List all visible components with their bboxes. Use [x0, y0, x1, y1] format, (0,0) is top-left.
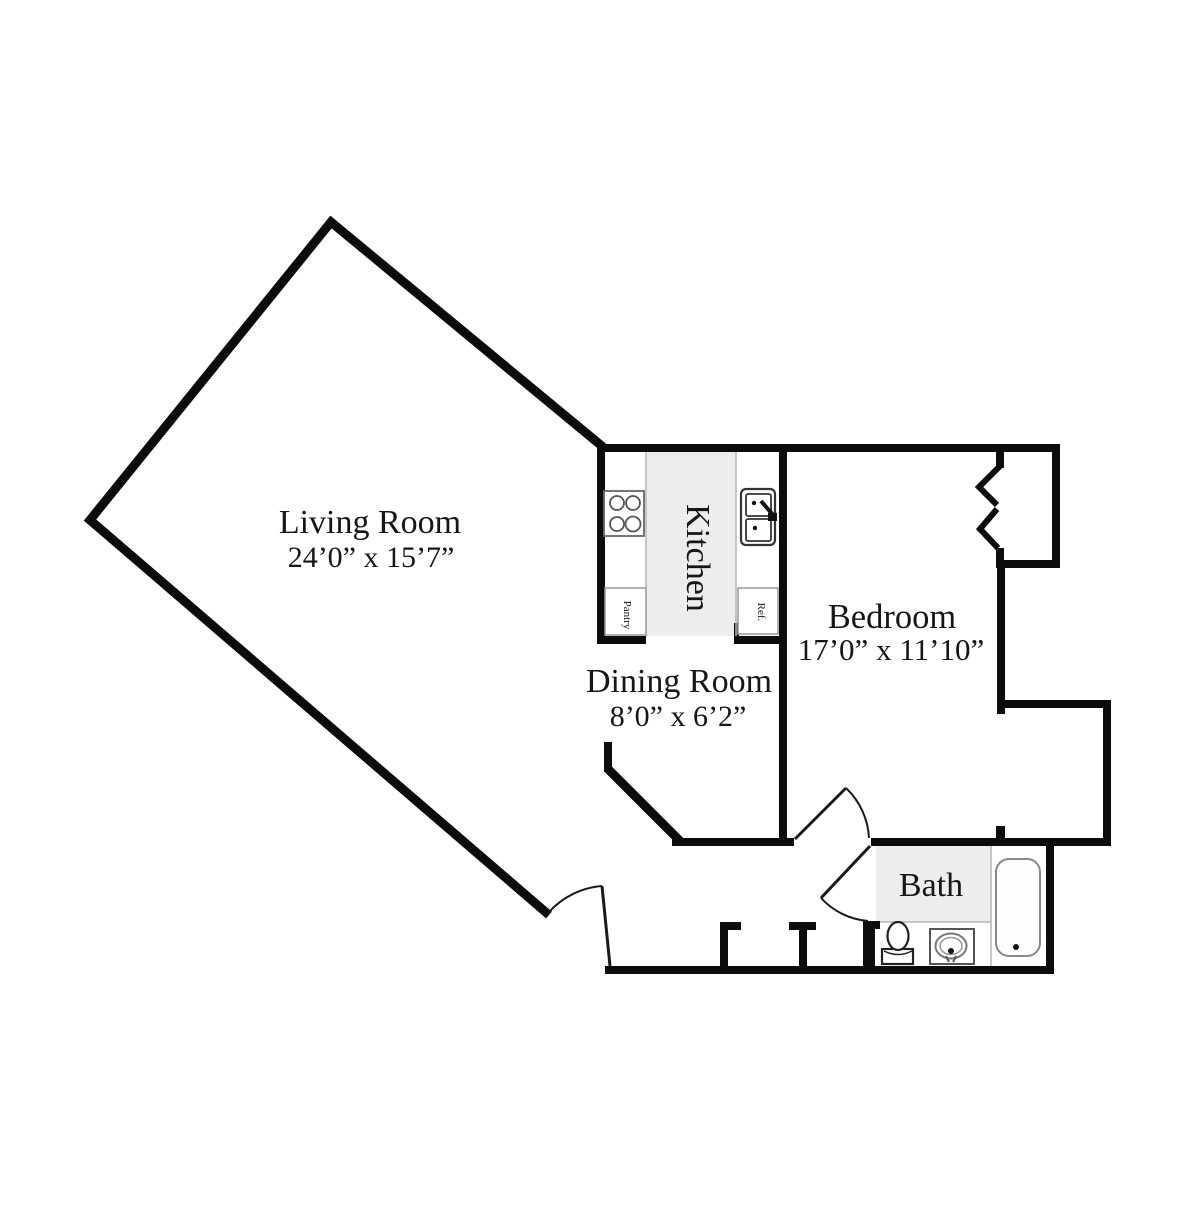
svg-text:Kitchen: Kitchen [679, 504, 716, 612]
svg-text:17’0” x 11’10”: 17’0” x 11’10” [798, 632, 985, 667]
svg-text:Living Room: Living Room [279, 504, 461, 541]
svg-text:Bedroom: Bedroom [828, 598, 957, 636]
svg-text:24’0” x 15’7”: 24’0” x 15’7” [288, 541, 455, 574]
svg-text:Bath: Bath [899, 867, 963, 904]
svg-text:Dining Room: Dining Room [586, 663, 772, 700]
svg-text:Ref.: Ref. [755, 603, 767, 622]
svg-text:8’0” x 6’2”: 8’0” x 6’2” [610, 700, 747, 733]
svg-text:Pantry: Pantry [621, 601, 633, 630]
